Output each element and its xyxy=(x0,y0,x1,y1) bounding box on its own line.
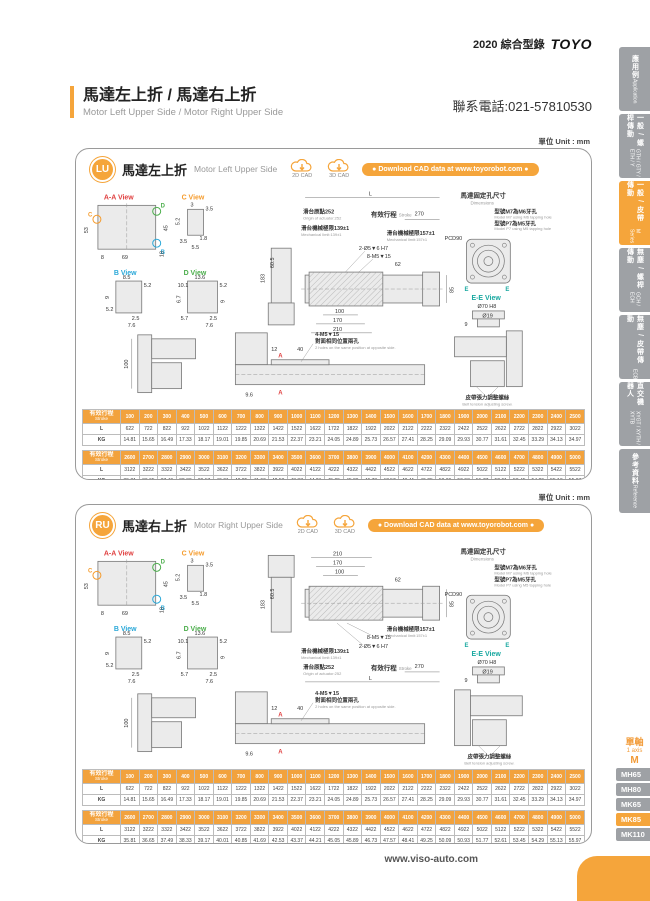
dim: 5.2 xyxy=(106,663,114,669)
dim: 6.7 xyxy=(177,295,183,303)
page-title: 馬達左上折 / 馬達右上折 xyxy=(83,86,283,105)
dim: 100 xyxy=(124,719,130,728)
belt-tension-label: 皮帶張力調整螺絲 xyxy=(468,753,512,761)
stroke-value-header: 1300 xyxy=(343,410,362,424)
tab-label: 無塵 / 螺桿傳動 xyxy=(624,248,646,292)
table-cell: 50.93 xyxy=(454,476,473,481)
series-group-en: 1 axis xyxy=(619,748,650,754)
stroke-value-header: 2500 xyxy=(566,410,585,424)
stroke-value-header: 2800 xyxy=(158,811,177,825)
motor-plate xyxy=(138,694,152,752)
motor-top-view xyxy=(235,333,267,365)
table-cell: 2022 xyxy=(380,424,399,435)
tab-general-belt-m-series[interactable]: 一般 / 皮帶傳動 M Series xyxy=(619,181,650,245)
model-tab-mh80[interactable]: MH80 xyxy=(616,783,650,796)
view-label-ee: E-E View xyxy=(471,295,501,302)
table-cell: 42.53 xyxy=(269,836,288,845)
dim: 3 xyxy=(191,202,194,208)
marker-a: A xyxy=(278,713,283,719)
cad-3d-button[interactable]: 3D CAD xyxy=(333,515,357,535)
pcd-label: PCD90 xyxy=(445,592,463,598)
table-cell: 23.21 xyxy=(306,795,325,806)
dim: 10.1 xyxy=(178,283,189,289)
table-cell: 1622 xyxy=(306,784,325,795)
stroke-tables-ru: 有效行程Stroke100200300400500600700800900100… xyxy=(76,767,591,844)
cad-3d-label: 3D CAD xyxy=(329,173,349,179)
marker-c: C xyxy=(88,212,93,218)
table-cell: 50.09 xyxy=(436,476,455,481)
panel-header-lu: LU 馬達左上折 Motor Left Upper Side 2D CAD 3D… xyxy=(76,149,591,183)
table-cell: 55.97 xyxy=(566,836,585,845)
marker-d: D xyxy=(161,559,166,565)
dim: 8.5 xyxy=(123,631,131,637)
table-cell: 47.57 xyxy=(380,836,399,845)
table-cell: 28.25 xyxy=(417,435,436,446)
table-cell: 2122 xyxy=(399,424,418,435)
stroke-value-header: 1100 xyxy=(306,770,325,784)
dim: 62 xyxy=(395,577,401,583)
stroke-label: 有效行程 xyxy=(371,663,397,672)
table-cell: 46.73 xyxy=(362,476,381,481)
stroke-value-header: 300 xyxy=(158,770,177,784)
stroke-value-header: 4100 xyxy=(399,451,418,465)
tab-sublabel: M Series xyxy=(628,229,642,246)
tab-application[interactable]: 應用例 Application xyxy=(619,47,650,111)
table-cell: 2222 xyxy=(417,784,436,795)
table-cell: 40.85 xyxy=(232,836,251,845)
tab-cartesian-robot[interactable]: 直交機器人 XYGT / XYTH / XYTB xyxy=(619,382,650,446)
stroke-value-header: 2000 xyxy=(473,410,492,424)
dim: 100 xyxy=(335,309,344,315)
unit-label-ru: 單位 Unit : mm xyxy=(538,492,590,503)
mount-title: 馬達固定孔尺寸 xyxy=(461,546,507,555)
cad-2d-button[interactable]: 2D CAD xyxy=(290,159,314,179)
motor-plate-right xyxy=(506,331,522,387)
table-cell: 3322 xyxy=(158,465,177,476)
row-label: L xyxy=(83,465,121,476)
table-cell: 1322 xyxy=(250,424,269,435)
marker-e: E xyxy=(464,643,468,649)
table-cell: 722 xyxy=(139,424,158,435)
tab-label: 應用例 xyxy=(629,55,641,79)
stroke-value-header: 4500 xyxy=(473,811,492,825)
table-cell: 4722 xyxy=(417,825,436,836)
stroke-value-header: 2700 xyxy=(139,811,158,825)
table-cell: 4022 xyxy=(287,465,306,476)
stroke-table: 有效行程Stroke260027002800290030003100320033… xyxy=(82,450,585,480)
table-cell: 4922 xyxy=(454,825,473,836)
stroke-value-header: 500 xyxy=(195,410,214,424)
stroke-value-header: 1000 xyxy=(287,770,306,784)
dim: 45 xyxy=(164,225,170,231)
table-cell: 1122 xyxy=(213,784,232,795)
stroke-value-header: 1800 xyxy=(436,410,455,424)
table-cell: 3822 xyxy=(250,825,269,836)
dim: 170 xyxy=(333,560,342,566)
table-cell: 4422 xyxy=(362,465,381,476)
table-cell: 39.17 xyxy=(195,836,214,845)
limit-left-label: 滑台機械極限139±1 xyxy=(301,647,349,655)
tab-cleanroom-belt[interactable]: 無塵 / 皮帶傳動 ECB xyxy=(619,315,650,379)
table-cell: 4122 xyxy=(306,825,325,836)
stroke-value-header: 3600 xyxy=(306,451,325,465)
tap-note-2-en: 2 holes on the same position at opposite… xyxy=(315,704,396,709)
table-cell: 34.97 xyxy=(566,435,585,446)
table-cell: 3222 xyxy=(139,465,158,476)
table-cell: 54.29 xyxy=(529,836,548,845)
table-cell: 41.69 xyxy=(250,836,269,845)
table-cell: 37.49 xyxy=(158,836,177,845)
origin-label: 滑台原點252 xyxy=(303,207,334,215)
dim: 13.6 xyxy=(195,631,206,637)
dim: 45 xyxy=(164,581,170,587)
table-cell: 4222 xyxy=(325,825,344,836)
tab-label: 一般 / 螺桿傳動 xyxy=(624,114,646,149)
tab-reference[interactable]: 參考資料 Reference xyxy=(619,449,650,513)
stroke-value-header: 4600 xyxy=(491,811,510,825)
table-cell: 5322 xyxy=(529,825,548,836)
stroke-value-header: 3500 xyxy=(287,811,306,825)
tap-note-2: 對面相同位置兩孔 xyxy=(315,337,359,345)
section-tab-bar: 應用例 Application 一般 / 螺桿傳動 GTH / GTY / ET… xyxy=(619,47,650,513)
table-cell: 922 xyxy=(176,784,195,795)
view-label-c: C View xyxy=(182,550,205,557)
table-cell: 34.97 xyxy=(566,795,585,806)
dim: 5.5 xyxy=(192,245,200,251)
table-cell: 1022 xyxy=(195,424,214,435)
table-cell: 17.33 xyxy=(176,795,195,806)
dim: 9 xyxy=(220,656,226,659)
stroke-value-header: 4200 xyxy=(417,811,436,825)
table-cell: 5022 xyxy=(473,825,492,836)
table-cell: 2322 xyxy=(436,424,455,435)
dim: 60.5 xyxy=(270,589,276,600)
table-cell: 29.93 xyxy=(454,795,473,806)
table-cell: 23.21 xyxy=(306,435,325,446)
origin-label-en: Origin of actuator:252 xyxy=(303,215,341,220)
table-cell: 1922 xyxy=(362,424,381,435)
table-cell: 2922 xyxy=(547,424,566,435)
table-cell: 45.05 xyxy=(325,476,344,481)
dim: 3.5 xyxy=(205,206,213,212)
table-cell: 5522 xyxy=(566,825,585,836)
table-cell: 3922 xyxy=(269,465,288,476)
table-cell: 22.37 xyxy=(287,795,306,806)
dim: 9 xyxy=(464,322,467,328)
dim: 210 xyxy=(333,551,342,557)
table-cell: 5522 xyxy=(566,465,585,476)
table-cell: 44.21 xyxy=(306,836,325,845)
end-block xyxy=(423,586,440,620)
table-cell: 53.45 xyxy=(510,836,529,845)
dim: 3 xyxy=(191,558,194,564)
panel-motor-right-upper-side: RU 馬達右上折 Motor Right Upper Side 2D CAD 3… xyxy=(75,504,592,844)
callout-holes: 2-Ø5▼6 H7 xyxy=(359,644,388,650)
toyo-logo: TOYO xyxy=(551,36,592,52)
table-cell: 51.77 xyxy=(473,476,492,481)
series-group-label: 單軸 1 axis M xyxy=(619,735,650,766)
table-cell: 14.81 xyxy=(121,795,140,806)
table-cell: 3022 xyxy=(566,784,585,795)
table-cell: 37.49 xyxy=(158,476,177,481)
stroke-value-header: 2400 xyxy=(547,410,566,424)
tab-cleanroom-screw[interactable]: 無塵 / 螺桿傳動 GCH / ECH xyxy=(619,248,650,312)
table-cell: 3422 xyxy=(176,825,195,836)
table-cell: 18.17 xyxy=(195,795,214,806)
table-cell: 24.89 xyxy=(343,795,362,806)
stroke-value-header: 2700 xyxy=(139,451,158,465)
model-tab-mk110[interactable]: MK110 xyxy=(616,828,650,841)
tap-note-2: 對面相同位置兩孔 xyxy=(315,696,359,704)
table-cell: 25.73 xyxy=(362,435,381,446)
table-cell: 1422 xyxy=(269,424,288,435)
download-cad-link[interactable]: ● Download CAD data at www.toyorobot.com… xyxy=(368,519,544,532)
end-block xyxy=(423,272,440,306)
dim: 5.2 xyxy=(144,283,152,289)
table-cell: 50.93 xyxy=(454,836,473,845)
dim-overall-length: L xyxy=(369,676,372,682)
stroke-value-header: 1100 xyxy=(306,410,325,424)
table-cell: 35.81 xyxy=(121,476,140,481)
dim: Ø70 H8 xyxy=(477,304,496,310)
table-cell: 622 xyxy=(121,784,140,795)
table-cell: 38.33 xyxy=(176,836,195,845)
carriage-plate xyxy=(271,360,329,365)
stroke-value-header: 100 xyxy=(121,770,140,784)
carriage-plate xyxy=(271,719,329,724)
table-cell: 31.61 xyxy=(491,435,510,446)
table-cell: 3622 xyxy=(213,825,232,836)
cad-3d-label: 3D CAD xyxy=(335,529,355,535)
stroke-value-header: 800 xyxy=(250,770,269,784)
dim: 270 xyxy=(415,664,424,670)
table-cell: 4022 xyxy=(287,825,306,836)
limit-left-label: 滑台機械極限139±1 xyxy=(301,224,349,232)
tab-general-screw[interactable]: 一般 / 螺桿傳動 GTH / GTY / ETH / Y xyxy=(619,114,650,178)
table-cell: 4722 xyxy=(417,465,436,476)
tab-label: 無塵 / 皮帶傳動 xyxy=(624,315,646,369)
stroke-value-header: 200 xyxy=(139,410,158,424)
stroke-value-header: 3500 xyxy=(287,451,306,465)
motor-plate-right xyxy=(455,690,471,746)
model-tab-mk65[interactable]: MK65 xyxy=(616,798,650,811)
table-cell: 1722 xyxy=(325,784,344,795)
table-cell: 4222 xyxy=(325,465,344,476)
tap-note: 4-M5▼15 xyxy=(315,691,339,697)
panel-title-ru: 馬達右上折 xyxy=(122,516,187,535)
table-cell: 1722 xyxy=(325,424,344,435)
table-cell: 2622 xyxy=(491,424,510,435)
callout-taps: 8-M5▼15 xyxy=(367,254,391,260)
limit-right-label-en: Mechanical limit:157±1 xyxy=(387,237,428,242)
table-cell: 1922 xyxy=(362,784,381,795)
cad-2d-label: 2D CAD xyxy=(298,529,318,535)
cad-2d-button[interactable]: 2D CAD xyxy=(296,515,320,535)
dim: 62 xyxy=(395,262,401,268)
b-view-shape xyxy=(116,281,142,313)
dim: 3.5 xyxy=(205,562,213,568)
dim: 1.8 xyxy=(200,592,208,598)
dim: 12 xyxy=(271,347,277,353)
stroke-value-header: 2000 xyxy=(473,770,492,784)
stroke-value-header: 2100 xyxy=(491,410,510,424)
dim: 5.7 xyxy=(181,316,189,322)
dim: 8 xyxy=(101,255,104,261)
marker-e: E xyxy=(464,287,468,293)
tab-label: 一般 / 皮帶傳動 xyxy=(624,181,646,229)
dim: 3.5 xyxy=(180,239,188,245)
stroke-value-header: 1000 xyxy=(287,410,306,424)
stroke-value-header: 900 xyxy=(269,410,288,424)
contact-phone: 聯系電話:021-57810530 xyxy=(453,96,592,115)
dim: 270 xyxy=(415,211,424,217)
stroke-header-cell: 有效行程Stroke xyxy=(83,451,121,465)
limit-right-label: 滑台機械極限157±1 xyxy=(387,229,435,237)
dim: 40 xyxy=(297,706,303,712)
stroke-value-header: 3300 xyxy=(250,811,269,825)
table-cell: 5422 xyxy=(547,465,566,476)
dim: 100 xyxy=(124,360,130,369)
table-cell: 822 xyxy=(158,424,177,435)
marker-a: A xyxy=(278,391,283,397)
website-url: www.viso-auto.com xyxy=(384,854,478,865)
table-cell: 3522 xyxy=(195,465,214,476)
stroke-tables-lu: 有效行程Stroke100200300400500600700800900100… xyxy=(76,407,591,480)
table-cell: 2522 xyxy=(473,424,492,435)
table-cell: 49.25 xyxy=(417,476,436,481)
stroke-value-header: 3300 xyxy=(250,451,269,465)
marker-a: A xyxy=(278,750,283,756)
model-tab-mk85[interactable]: MK85 xyxy=(616,813,650,826)
view-label-c: C View xyxy=(182,194,205,201)
dim: 9 xyxy=(105,296,111,299)
table-cell: 39.17 xyxy=(195,476,214,481)
motor-body xyxy=(152,339,196,359)
tab-sublabel: GTH / GTY / ETH / Y xyxy=(628,149,642,178)
table-cell: 49.25 xyxy=(417,836,436,845)
stroke-value-header: 1900 xyxy=(454,770,473,784)
table-cell: 50.09 xyxy=(436,836,455,845)
mount-title-en: Dimensions xyxy=(470,556,494,561)
table-cell: 4822 xyxy=(436,465,455,476)
stroke-table: 有效行程Stroke100200300400500600700800900100… xyxy=(82,769,585,806)
motor-mount-face xyxy=(466,595,510,639)
page-title-block: 馬達左上折 / 馬達右上折 Motor Left Upper Side / Mo… xyxy=(70,86,283,118)
dim: Ø70 H8 xyxy=(477,660,496,666)
gearbox xyxy=(152,363,182,389)
stroke-value-header: 700 xyxy=(232,770,251,784)
motor-mount-face xyxy=(466,239,510,283)
technical-drawing-ru: A-A View C D B 53 45 8 69 18 C View 3 3.… xyxy=(76,539,591,767)
stroke-value-header: 800 xyxy=(250,410,269,424)
rail-side-view xyxy=(235,365,424,385)
stroke-header-cell: 有效行程Stroke xyxy=(83,410,121,424)
dim: 53 xyxy=(84,227,90,233)
table-cell: 41.69 xyxy=(250,476,269,481)
table-cell: 2222 xyxy=(417,424,436,435)
row-label: KG xyxy=(83,836,121,845)
stroke-value-header: 3100 xyxy=(213,811,232,825)
stroke-value-header: 4700 xyxy=(510,811,529,825)
table-cell: 2722 xyxy=(510,424,529,435)
dim: 2.5 xyxy=(132,672,140,678)
table-cell: 3222 xyxy=(139,825,158,836)
dim: 2.5 xyxy=(209,316,217,322)
limit-right-label-en: Mechanical limit:157±1 xyxy=(387,633,428,638)
table-cell: 28.25 xyxy=(417,795,436,806)
badge-ru: RU xyxy=(90,513,115,538)
pcd-label: PCD90 xyxy=(445,236,463,242)
stroke-value-header: 4700 xyxy=(510,451,529,465)
dim: 1.8 xyxy=(200,236,208,242)
cad-3d-button[interactable]: 3D CAD xyxy=(327,159,351,179)
stroke-value-header: 3900 xyxy=(362,811,381,825)
download-cad-link[interactable]: ● Download CAD data at www.toyorobot.com… xyxy=(362,163,538,176)
dim: 5.7 xyxy=(181,672,189,678)
table-cell: 4922 xyxy=(454,465,473,476)
table-cell: 34.13 xyxy=(547,795,566,806)
table-cell: 16.49 xyxy=(158,795,177,806)
stroke-value-header: 4800 xyxy=(529,451,548,465)
stroke-value-header: 1500 xyxy=(380,410,399,424)
table-cell: 40.01 xyxy=(213,476,232,481)
stroke-table: 有效行程Stroke260027002800290030003100320033… xyxy=(82,810,585,844)
stroke-label-en: Stroke xyxy=(399,666,412,671)
stroke-value-header: 4100 xyxy=(399,811,418,825)
table-cell: 1522 xyxy=(287,784,306,795)
tap-note: 4-M5▼15 xyxy=(315,332,339,338)
table-cell: 1422 xyxy=(269,784,288,795)
model-tab-mh65[interactable]: MH65 xyxy=(616,768,650,781)
c-view-shape xyxy=(188,209,204,235)
stroke-value-header: 2200 xyxy=(510,770,529,784)
table-cell: 17.33 xyxy=(176,435,195,446)
dim: 69 xyxy=(122,255,128,261)
stroke-value-header: 500 xyxy=(195,770,214,784)
table-cell: 622 xyxy=(121,424,140,435)
stroke-value-header: 3000 xyxy=(195,811,214,825)
dim: 2.5 xyxy=(132,316,140,322)
dim: 53 xyxy=(84,583,90,589)
table-cell: 15.65 xyxy=(139,435,158,446)
table-cell: 29.93 xyxy=(454,435,473,446)
table-cell: 5422 xyxy=(547,825,566,836)
table-cell: 2022 xyxy=(380,784,399,795)
row-label: L xyxy=(83,424,121,435)
series-group-zh: 單軸 xyxy=(619,735,650,748)
table-cell: 30.77 xyxy=(473,435,492,446)
stroke-value-header: 4300 xyxy=(436,451,455,465)
table-cell: 45.89 xyxy=(343,476,362,481)
table-cell: 3422 xyxy=(176,465,195,476)
stroke-value-header: 3900 xyxy=(362,451,381,465)
table-cell: 722 xyxy=(139,784,158,795)
stroke-value-header: 3800 xyxy=(343,811,362,825)
marker-a: A xyxy=(278,354,283,360)
motor-body xyxy=(152,698,196,718)
cad-2d-label: 2D CAD xyxy=(292,173,312,179)
table-cell: 40.85 xyxy=(232,476,251,481)
tab-sublabel: GCH / ECH xyxy=(628,292,642,312)
stroke-table: 有效行程Stroke100200300400500600700800900100… xyxy=(82,409,585,446)
origin-label-en: Origin of actuator:252 xyxy=(303,671,341,676)
row-label: KG xyxy=(83,795,121,806)
table-cell: 18.17 xyxy=(195,435,214,446)
unit-label-lu: 單位 Unit : mm xyxy=(538,136,590,147)
table-cell: 53.45 xyxy=(510,476,529,481)
rail-side-view xyxy=(235,724,424,744)
table-cell: 43.37 xyxy=(287,836,306,845)
